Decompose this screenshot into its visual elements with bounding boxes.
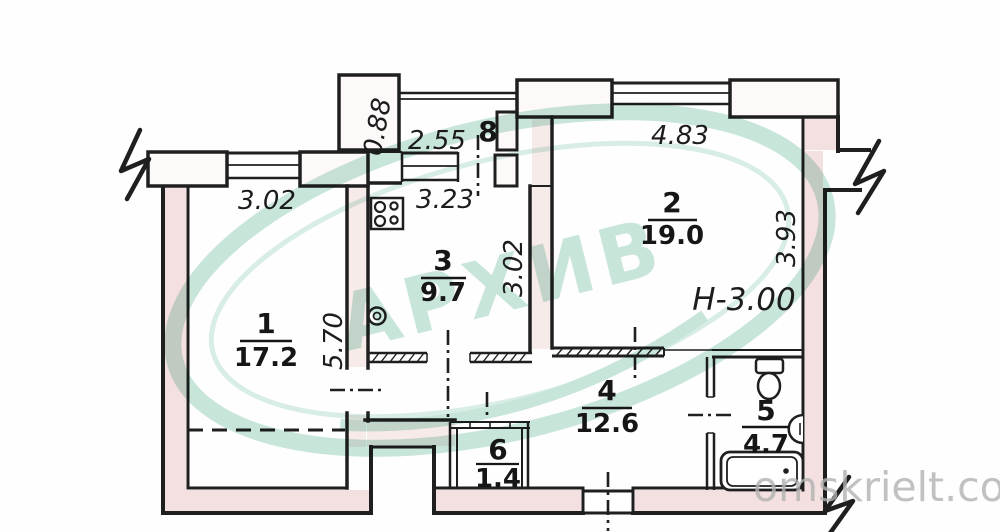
site-watermark: omskrielt.com <box>753 463 1000 511</box>
room-4-area: 12.6 <box>575 409 639 439</box>
floor-plan: АРХИВ 3.02 2.55 3.23 4.83 0.88 3.02 5.70… <box>0 0 1000 532</box>
wall-break-icon <box>121 130 149 199</box>
room-2-number: 2 <box>662 186 681 219</box>
dim-room1-width: 3.02 <box>238 186 296 216</box>
room-5-number: 5 <box>756 394 775 427</box>
room-3-area: 9.7 <box>420 278 466 308</box>
dim-kitchen-width: 3.23 <box>416 185 474 215</box>
dimension-labels: 3.02 2.55 3.23 4.83 0.88 3.02 5.70 3.93 … <box>238 96 802 370</box>
toilet-icon <box>756 359 783 399</box>
room-3-number: 3 <box>433 244 452 277</box>
room-8-number: 8 <box>478 115 497 148</box>
dim-room2-depth: 3.93 <box>772 209 802 267</box>
room-2-area: 19.0 <box>640 221 704 251</box>
room-1-number: 1 <box>256 307 275 340</box>
room-4-number: 4 <box>597 374 616 407</box>
washbasin-icon <box>789 415 803 443</box>
dim-kitchen-depth: 3.02 <box>499 239 529 297</box>
dim-balcony-width: 2.55 <box>408 126 466 156</box>
ceiling-height-note: Н-3.00 <box>692 282 796 318</box>
stove-icon <box>371 198 403 229</box>
balcony-railing <box>399 93 517 99</box>
dim-room2-width: 4.83 <box>651 121 709 151</box>
room-6-area: 1.4 <box>475 464 521 494</box>
floorplan-page: АРХИВ 3.02 2.55 3.23 4.83 0.88 3.02 5.70… <box>0 0 1000 532</box>
window-room1 <box>227 152 300 179</box>
window-room2 <box>612 83 730 104</box>
dim-room1-depth: 5.70 <box>319 312 349 370</box>
room-5-area: 4.7 <box>743 430 789 460</box>
room-6-number: 6 <box>488 433 507 466</box>
room-1-area: 17.2 <box>234 343 298 373</box>
